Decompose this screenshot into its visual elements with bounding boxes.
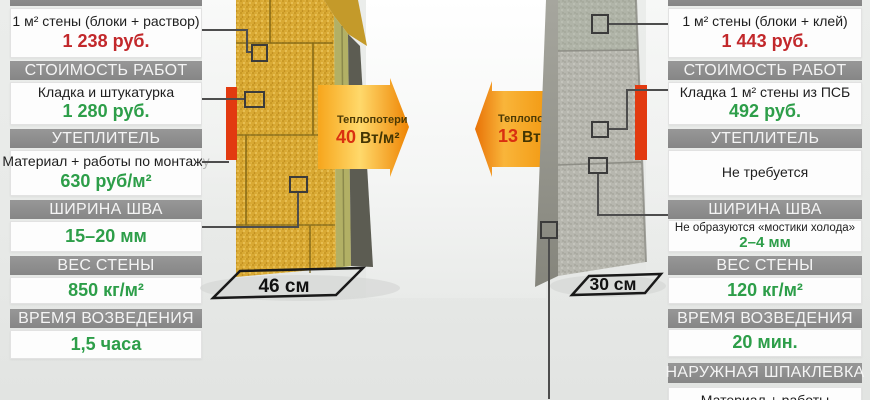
section-label: 1 м² стены (блоки + раствор) — [12, 13, 199, 31]
left-box-insulation: Материал + работы по монтажу 630 руб/м² — [10, 150, 202, 196]
section-value: 1,5 часа — [71, 334, 142, 356]
section-label: 1 м² стены (блоки + клей) — [682, 13, 847, 31]
section-value: 15–20 мм — [65, 226, 147, 248]
right-wall-width-label: 30 см — [589, 274, 636, 294]
section-value: 1 443 руб. — [722, 31, 809, 53]
right-header-material-costs: ЗАТРАТЫ НА МАТЕРИАЛ — [668, 0, 862, 6]
section-value: 492 руб. — [729, 101, 801, 123]
section-value: 120 кг/м² — [727, 280, 803, 302]
right-wall — [535, 0, 647, 287]
section-value: 20 мин. — [732, 332, 797, 354]
right-header-joint-width: ШИРИНА ШВА — [668, 200, 862, 219]
heat-loss-label-left: Теплопотери — [337, 114, 408, 126]
right-wall-top-block-tint — [558, 0, 638, 51]
heat-loss-arrow-left: Теплопотери 40Вт/м² — [318, 78, 409, 177]
section-label: Материал + работы по монтажу — [2, 153, 209, 171]
left-wall-red-marker-bar — [226, 87, 237, 160]
left-header-work-cost: СТОИМОСТЬ РАБОТ — [10, 61, 202, 80]
section-label: Кладка 1 м² стены из ПСБ — [680, 84, 850, 102]
left-header-material-costs: ЗАТРАТЫ НА МАТЕРИАЛ — [10, 0, 202, 6]
right-box-insulation: Не требуется — [668, 150, 862, 196]
right-header-wall-weight: ВЕС СТЕНЫ — [668, 256, 862, 275]
section-label: Кладка и штукатурка — [38, 84, 174, 102]
right-box-material-costs: 1 м² стены (блоки + клей) 1 443 руб. — [668, 8, 862, 58]
right-header-outer-putty: НАРУЖНАЯ ШПАКЛЕВКА — [668, 363, 862, 383]
left-box-work-cost: Кладка и штукатурка 1 280 руб. — [10, 82, 202, 125]
right-box-build-time: 20 мин. — [668, 329, 862, 357]
left-box-material-costs: 1 м² стены (блоки + раствор) 1 238 руб. — [10, 8, 202, 58]
section-value: 1 280 руб. — [63, 101, 150, 123]
left-wall-width-label: 46 см — [258, 276, 309, 297]
walls-scene: Теплопотери 13Вт/м² Теплопотери 40Вт — [200, 0, 670, 400]
right-box-joint-width: Не образуются «мостики холода» 2–4 мм — [668, 220, 862, 252]
section-value: 850 кг/м² — [68, 280, 144, 302]
section-value: 1 238 руб. — [63, 31, 150, 53]
section-label: Не образуются «мостики холода» — [675, 222, 855, 234]
left-header-build-time: ВРЕМЯ ВОЗВЕДЕНИЯ — [10, 309, 202, 328]
section-label: Не требуется — [722, 164, 808, 182]
wall-comparison-infographic: ЗАТРАТЫ НА МАТЕРИАЛ 1 м² стены (блоки + … — [0, 0, 870, 400]
left-header-insulation: УТЕПЛИТЕЛЬ — [10, 129, 202, 148]
section-label: Материал + работы — [701, 392, 829, 400]
section-value: 2–4 мм — [739, 234, 790, 251]
left-header-wall-weight: ВЕС СТЕНЫ — [10, 256, 202, 275]
right-box-outer-putty: Материал + работы — [668, 387, 862, 400]
section-value: 630 руб/м² — [60, 171, 151, 193]
right-box-work-cost: Кладка 1 м² стены из ПСБ 492 руб. — [668, 82, 862, 125]
right-header-work-cost: СТОИМОСТЬ РАБОТ — [668, 61, 862, 80]
right-box-wall-weight: 120 кг/м² — [668, 277, 862, 304]
arrow-right-pointing — [318, 78, 409, 177]
right-header-insulation: УТЕПЛИТЕЛЬ — [668, 129, 862, 148]
room-glow-right — [646, 0, 668, 270]
heat-loss-value-left: 40Вт/м² — [336, 127, 400, 147]
left-box-build-time: 1,5 часа — [10, 330, 202, 359]
right-header-build-time: ВРЕМЯ ВОЗВЕДЕНИЯ — [668, 309, 862, 328]
left-box-joint-width: 15–20 мм — [10, 221, 202, 252]
right-wall-red-marker-bar — [635, 85, 647, 160]
left-box-wall-weight: 850 кг/м² — [10, 277, 202, 304]
left-header-joint-width: ШИРИНА ШВА — [10, 200, 202, 219]
